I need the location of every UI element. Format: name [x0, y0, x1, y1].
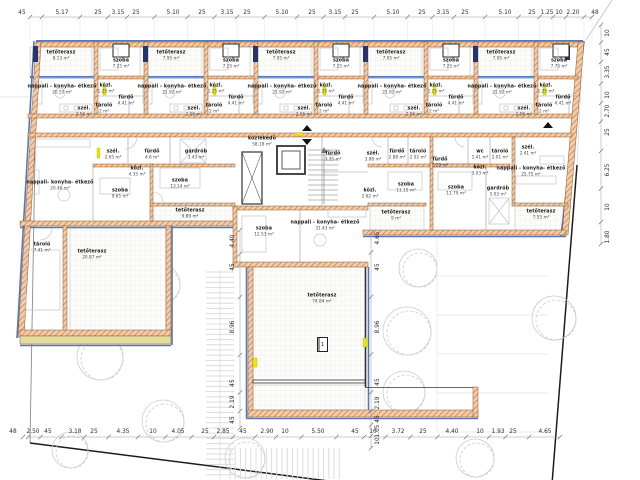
dim-label: 45 — [18, 10, 25, 16]
room-area: 20.46 m² — [26, 186, 93, 191]
room-name: tetőterasz — [527, 210, 556, 216]
room-name: szoba — [443, 59, 460, 65]
room-area: 5.03 m² — [487, 192, 509, 197]
dim-label: 25 — [418, 10, 425, 16]
room-label: nappali - konyha- étkező25.75 m² — [497, 167, 566, 178]
dim-label: 4.65 — [539, 429, 552, 435]
dim-label: 8.96 — [230, 321, 236, 334]
room-name: tetőterasz — [47, 51, 76, 57]
dim-label: 2.50 — [27, 429, 40, 435]
room-area: 74.84 m² — [308, 299, 337, 304]
room-label: nappali - konyha- étkező31.43 m² — [291, 221, 360, 232]
room-name: nappali - konyha- étkező — [497, 167, 566, 173]
room-name: nappali - konyha- étkező — [138, 85, 207, 91]
room-area: 21.92 m² — [468, 90, 537, 95]
room-area: 2 m² — [206, 109, 223, 114]
room-area: 7.25 m² — [443, 64, 460, 69]
room-area: 2.62 m² — [362, 194, 379, 199]
room-label: nappali- konyha- étkező20.46 m² — [26, 181, 93, 192]
room-name: nappali - konyha- étkező — [248, 85, 317, 91]
room-area: 4.41 m² — [228, 101, 245, 106]
dim-label: 2.90 — [261, 429, 274, 435]
room-label: közl.1.25 m² — [98, 84, 115, 95]
room-label: szoba11.79 m² — [446, 186, 466, 197]
room-label: szél.2.56 m² — [76, 107, 93, 118]
room-label: nappali - konyha- étkező21.92 m² — [248, 85, 317, 96]
room-label: fürdő3.35 m² — [325, 152, 342, 163]
room-name: közl. — [129, 167, 146, 173]
room-name: tároló — [410, 150, 427, 156]
room-area: 4.41 m² — [118, 101, 135, 106]
room-area: 31.43 m² — [291, 226, 360, 231]
room-label: szél.2.56 m² — [516, 107, 533, 118]
dim-label: 4.65 — [375, 232, 381, 245]
dim-label: 10 — [605, 91, 611, 98]
room-area: 7.25 m² — [333, 64, 350, 69]
room-label: szél.3.88 m² — [365, 152, 382, 163]
room-label: tároló2 m² — [536, 104, 553, 115]
room-area: 21.92 m² — [138, 90, 207, 95]
room-name: fürdő — [448, 96, 465, 102]
room-label: tetőterasz9 m² — [382, 211, 411, 222]
room-label: közl.4.35 m² — [129, 167, 146, 178]
room-name: tároló — [536, 104, 553, 110]
room-label: tároló2 m² — [96, 104, 113, 115]
room-area: 12.53 m² — [254, 232, 274, 237]
room-area: 7.95 m² — [377, 56, 406, 61]
room-name: tároló — [426, 104, 443, 110]
room-area: 7.55 m² — [527, 215, 556, 220]
room-name: tetőterasz — [267, 51, 296, 57]
room-area: 7.95 m² — [487, 56, 516, 61]
room-area: 1.25 m² — [98, 89, 115, 94]
room-name: közl. — [428, 84, 445, 90]
dim-label: 45 — [375, 378, 381, 385]
room-name: nappali - konyha- étkező — [358, 85, 427, 91]
room-name: fürdő — [389, 150, 406, 156]
room-label: fürdő4.41 m² — [448, 96, 465, 107]
room-name: nappali - konyha- étkező — [28, 85, 97, 91]
room-name: szél. — [520, 146, 537, 152]
dim-label: 25 — [419, 429, 426, 435]
room-area: 2 m² — [316, 109, 333, 114]
dim-label: 3.72 — [392, 429, 405, 435]
room-label: szél.2.65 m² — [105, 150, 122, 161]
room-area: 2.56 m² — [186, 112, 203, 117]
dim-label: 4.05 — [172, 429, 185, 435]
unit-marker: 1 — [317, 337, 328, 352]
room-area: 3.03 m² — [472, 171, 489, 176]
dim-label: 2.70 — [605, 105, 611, 118]
dim-label: 45 — [230, 263, 236, 270]
room-area: 1.25 m² — [318, 89, 335, 94]
dim-label: 4.40 — [230, 235, 236, 248]
dim-label: 45 — [375, 415, 381, 422]
dim-label: 2.20 — [567, 10, 580, 16]
room-label: szoba7.75 m² — [551, 59, 568, 70]
room-area: 20.87 m² — [78, 255, 107, 260]
dim-label: 3.35 — [605, 66, 611, 79]
floor-plan: tetőterasz8.13 m²tetőterasz7.95 m²tetőte… — [0, 0, 640, 480]
room-name: tetőterasz — [382, 211, 411, 217]
dim-label: 1.80 — [605, 231, 611, 244]
room-area: 7.95 m² — [157, 56, 186, 61]
room-label: szoba7.25 m² — [113, 59, 130, 70]
room-area: 2.02 m² — [410, 155, 427, 160]
room-name: szél. — [406, 107, 423, 113]
room-name: szél. — [296, 107, 313, 113]
dim-label: 25 — [201, 429, 208, 435]
room-label: nappali - konyha- étkező21.92 m² — [358, 85, 427, 96]
room-name: közl. — [362, 189, 379, 195]
room-name: szoba — [446, 186, 466, 192]
room-label: fürdő2.88 m² — [389, 150, 406, 161]
dim-label: 25 — [509, 429, 516, 435]
dim-label: 5.10 — [167, 10, 180, 16]
room-label: közl.1.25 m² — [318, 84, 335, 95]
dim-label: 25 — [243, 10, 250, 16]
room-label: közlekedő58.18 m² — [248, 137, 276, 148]
room-label: szél.2.56 m² — [186, 107, 203, 118]
dim-label: 2.19 — [230, 396, 236, 409]
room-area: 7.75 m² — [551, 64, 568, 69]
room-name: szél. — [105, 150, 122, 156]
dim-label: 25 — [94, 10, 101, 16]
dim-label: 2.85 — [217, 429, 230, 435]
room-label: fürdő7.29 m² — [432, 158, 449, 169]
room-area: 7.95 m² — [267, 56, 296, 61]
room-area: 58.18 m² — [248, 142, 276, 147]
dim-label: 3.15 — [112, 10, 125, 16]
room-name: szoba — [170, 179, 190, 185]
room-area: 4.35 m² — [129, 172, 146, 177]
room-label: fürdő4.6 m² — [144, 150, 159, 161]
room-name: szél. — [365, 152, 382, 158]
dim-label: 25 — [308, 10, 315, 16]
room-name: tetőterasz — [308, 294, 337, 300]
dim-label: 25 — [351, 10, 358, 16]
room-label: közl.1.25 m² — [208, 84, 225, 95]
room-area: 9.65 m² — [112, 194, 129, 199]
room-area: 2.56 m² — [406, 112, 423, 117]
room-name: szél. — [186, 107, 203, 113]
room-name: fürdő — [555, 96, 572, 102]
room-label: tároló2.01 m² — [492, 150, 509, 161]
room-area: 4.6 m² — [144, 155, 159, 160]
room-area: 3.35 m² — [325, 157, 342, 162]
room-area: 2.56 m² — [76, 112, 93, 117]
room-name: fürdő — [432, 158, 449, 164]
room-area: 2.41 m² — [520, 151, 537, 156]
dim-label: 6.25 — [605, 164, 611, 177]
room-label: közl.1.25 m² — [538, 84, 555, 95]
room-area: 13.14 m² — [170, 184, 190, 189]
dim-label: 45 — [230, 379, 236, 386]
dim-label: 4.35 — [117, 429, 130, 435]
room-name: szoba — [333, 59, 350, 65]
dim-label: 25 — [132, 10, 139, 16]
dim-label: 10 — [605, 203, 611, 210]
room-label: fürdő4.41 m² — [338, 96, 355, 107]
room-label: szoba12.53 m² — [254, 227, 274, 238]
dim-label: 5.10 — [276, 10, 289, 16]
room-name: szoba — [113, 59, 130, 65]
room-name: szoba — [112, 189, 129, 195]
room-label: szél.2.41 m² — [520, 146, 537, 157]
room-name: fürdő — [338, 96, 355, 102]
dim-label: 10 — [149, 429, 156, 435]
dim-label: 45 — [44, 429, 51, 435]
room-area: 21.92 m² — [248, 90, 317, 95]
room-area: 7.25 m² — [113, 64, 130, 69]
room-name: közl. — [208, 84, 225, 90]
dim-label: 3.15 — [329, 10, 342, 16]
room-name: gardrób — [185, 150, 207, 156]
dim-label: 48 — [9, 429, 16, 435]
dim-label: 25 — [461, 10, 468, 16]
room-area: 7.41 m² — [34, 248, 51, 253]
dim-label: 45 — [239, 429, 246, 435]
room-name: fürdő — [144, 150, 159, 156]
room-label: közl.1.25 m² — [428, 84, 445, 95]
room-area: 1.25 m² — [538, 89, 555, 94]
dim-label: 10 — [476, 429, 483, 435]
room-name: tetőterasz — [487, 51, 516, 57]
room-name: tároló — [206, 104, 223, 110]
room-area: 2.01 m² — [492, 155, 509, 160]
room-label: tároló7.41 m² — [34, 243, 51, 254]
room-label: tetőterasz7.95 m² — [377, 51, 406, 62]
room-area: 1.25 m² — [208, 89, 225, 94]
room-area: 4.41 m² — [338, 101, 355, 106]
room-label: fürdő4.41 m² — [118, 96, 135, 107]
room-area: 9.89 m² — [176, 214, 205, 219]
room-label: tetőterasz8.13 m² — [47, 51, 76, 62]
dim-label: 48 — [591, 10, 598, 16]
room-name: fürdő — [325, 152, 342, 158]
room-name: tetőterasz — [176, 209, 205, 215]
dim-label: 45 — [375, 263, 381, 270]
room-label: tároló2.02 m² — [410, 150, 427, 161]
dim-label: 45 — [230, 416, 236, 423]
room-label: fürdő4.41 m² — [228, 96, 245, 107]
room-name: tároló — [34, 243, 51, 249]
room-name: fürdő — [118, 96, 135, 102]
dim-label: 25 — [605, 128, 611, 135]
room-label: szoba7.25 m² — [333, 59, 350, 70]
dim-label: 25 — [528, 10, 535, 16]
room-name: gardrób — [487, 187, 509, 193]
room-name: tetőterasz — [78, 250, 107, 256]
room-label: tároló2 m² — [426, 104, 443, 115]
dim-label: 5.10 — [499, 10, 512, 16]
room-area: 25.75 m² — [497, 172, 566, 177]
room-name: közl. — [98, 84, 115, 90]
room-area: 2 m² — [96, 109, 113, 114]
room-area: 2.88 m² — [389, 155, 406, 160]
room-label: tetőterasz7.95 m² — [267, 51, 296, 62]
room-label: tetőterasz7.95 m² — [157, 51, 186, 62]
room-name: nappali - konyha- étkező — [291, 221, 360, 227]
room-label: szoba9.65 m² — [112, 189, 129, 200]
room-area: 1.41 m² — [472, 155, 489, 160]
room-area: 11.15 m² — [396, 188, 416, 193]
room-area: 8.13 m² — [47, 56, 76, 61]
room-area: 2.56 m² — [296, 112, 313, 117]
room-area: 11.79 m² — [446, 191, 466, 196]
room-area: 4.41 m² — [448, 101, 465, 106]
room-name: tetőterasz — [377, 51, 406, 57]
dim-label: 10 — [375, 437, 381, 444]
room-name: szél. — [76, 107, 93, 113]
room-name: nappali - konyha- étkező — [468, 85, 537, 91]
room-name: tetőterasz — [157, 51, 186, 57]
room-name: közl. — [538, 84, 555, 90]
room-name: szél. — [516, 107, 533, 113]
dim-label: 5.17 — [56, 10, 69, 16]
dim-label: 10 — [281, 429, 288, 435]
room-label: tetőterasz7.55 m² — [527, 210, 556, 221]
room-label: tetőterasz7.95 m² — [487, 51, 516, 62]
room-area: 20.55 m² — [28, 90, 97, 95]
room-label: tetőterasz9.89 m² — [176, 209, 205, 220]
dim-label: 2.19 — [375, 397, 381, 410]
dim-label: 3.15 — [221, 10, 234, 16]
room-label: szoba7.25 m² — [223, 59, 240, 70]
room-label: tároló2 m² — [206, 104, 223, 115]
dim-label: 5.50 — [312, 429, 325, 435]
dim-label: 5.10 — [387, 10, 400, 16]
room-area: 9 m² — [382, 216, 411, 221]
dim-label: 45 — [351, 429, 358, 435]
room-label: wc1.41 m² — [472, 150, 489, 161]
room-label: tetőterasz20.87 m² — [78, 250, 107, 261]
room-area: 3.88 m² — [365, 157, 382, 162]
dim-label: 25 — [198, 10, 205, 16]
room-name: szoba — [396, 183, 416, 189]
room-name: közl. — [318, 84, 335, 90]
room-label: tetőterasz74.84 m² — [308, 294, 337, 305]
dim-label: 25 — [90, 429, 97, 435]
room-label: gardrób5.03 m² — [487, 187, 509, 198]
room-label: gardrób3.43 m² — [185, 150, 207, 161]
room-label: tároló2 m² — [316, 104, 333, 115]
room-label: szoba13.14 m² — [170, 179, 190, 190]
room-area: 4.41 m² — [555, 101, 572, 106]
room-label: nappali - konyha- étkező21.92 m² — [138, 85, 207, 96]
dim-label: 3.15 — [437, 10, 450, 16]
room-area: 1.25 m² — [428, 89, 445, 94]
room-name: szoba — [223, 59, 240, 65]
room-name: fürdő — [228, 96, 245, 102]
dim-label: 1.93 — [492, 429, 505, 435]
dim-label: 45 — [605, 48, 611, 55]
dim-label: 1.25 — [541, 10, 554, 16]
room-area: 2.65 m² — [105, 155, 122, 160]
room-label: közl.3.03 m² — [472, 166, 489, 177]
room-label: közl.2.62 m² — [362, 189, 379, 200]
room-label: nappali - konyha- étkező21.92 m² — [468, 85, 537, 96]
room-area: 2 m² — [536, 109, 553, 114]
room-area: 2.56 m² — [516, 112, 533, 117]
room-name: szoba — [254, 227, 274, 233]
dim-label: 4.40 — [446, 429, 459, 435]
room-area: 3.43 m² — [185, 155, 207, 160]
dim-label: 10 — [555, 10, 562, 16]
labels-layer: tetőterasz8.13 m²tetőterasz7.95 m²tetőte… — [0, 0, 640, 480]
dim-label: 3.18 — [69, 429, 82, 435]
room-name: tároló — [316, 104, 333, 110]
room-label: szél.2.56 m² — [296, 107, 313, 118]
room-area: 2 m² — [426, 109, 443, 114]
room-name: közl. — [472, 166, 489, 172]
room-area: 21.92 m² — [358, 90, 427, 95]
dim-label: 1.05 — [375, 425, 381, 438]
room-name: tároló — [492, 150, 509, 156]
room-label: szoba7.25 m² — [443, 59, 460, 70]
room-label: fürdő4.41 m² — [555, 96, 572, 107]
room-name: nappali- konyha- étkező — [26, 181, 93, 187]
room-name: közlekedő — [248, 137, 276, 143]
room-label: szél.2.56 m² — [406, 107, 423, 118]
room-label: nappali - konyha- étkező20.55 m² — [28, 85, 97, 96]
dim-label: 10 — [605, 29, 611, 36]
room-name: szoba — [551, 59, 568, 65]
room-label: szoba11.15 m² — [396, 183, 416, 194]
room-area: 7.29 m² — [432, 163, 449, 168]
room-name: tároló — [96, 104, 113, 110]
dim-label: 8.96 — [375, 321, 381, 334]
room-area: 7.25 m² — [223, 64, 240, 69]
